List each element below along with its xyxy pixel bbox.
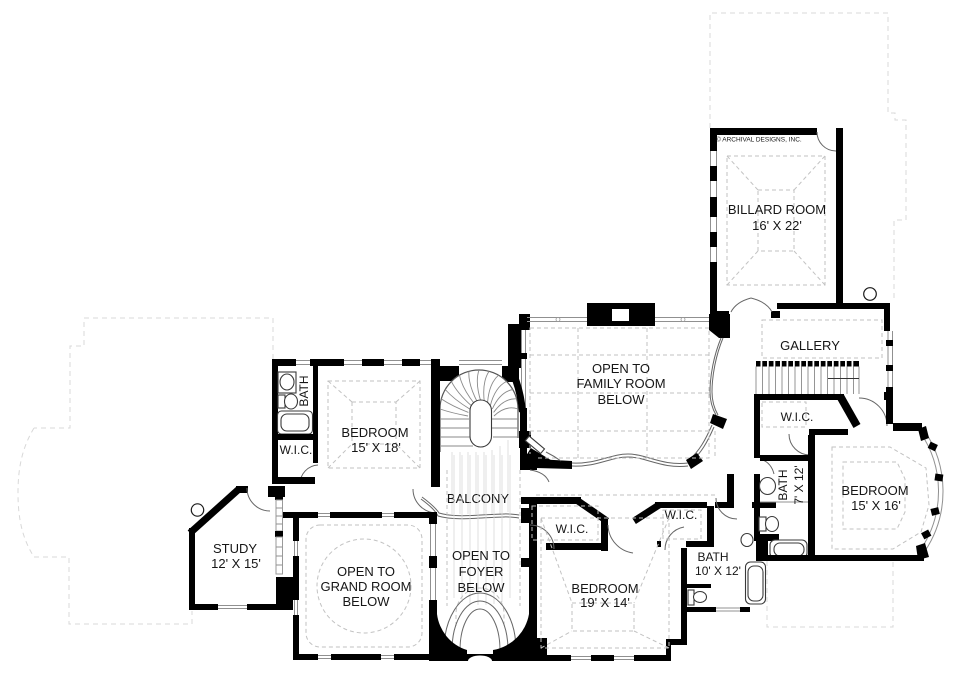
svg-text:15' X 18': 15' X 18' bbox=[351, 440, 401, 455]
svg-text:BELOW: BELOW bbox=[598, 392, 646, 407]
svg-text:OPEN TO: OPEN TO bbox=[592, 361, 650, 376]
svg-text:BATH: BATH bbox=[776, 469, 790, 500]
svg-text:GALLERY: GALLERY bbox=[780, 338, 840, 353]
svg-text:STUDY: STUDY bbox=[213, 541, 257, 556]
svg-text:W.I.C.: W.I.C. bbox=[781, 410, 814, 424]
svg-text:15' X 16': 15' X 16' bbox=[851, 498, 901, 513]
svg-text:FAMILY ROOM: FAMILY ROOM bbox=[576, 376, 665, 391]
svg-text:GRAND ROOM: GRAND ROOM bbox=[321, 579, 412, 594]
svg-text:12' X 15': 12' X 15' bbox=[211, 556, 261, 571]
svg-text:FOYER: FOYER bbox=[459, 564, 504, 579]
svg-text:BELOW: BELOW bbox=[343, 594, 391, 609]
svg-text:W.I.C.: W.I.C. bbox=[556, 522, 589, 536]
svg-text:© ARCHIVAL DESIGNS, INC.: © ARCHIVAL DESIGNS, INC. bbox=[716, 136, 802, 144]
svg-text:W.I.C.: W.I.C. bbox=[665, 508, 698, 522]
svg-text:10' X 12': 10' X 12' bbox=[695, 564, 741, 578]
svg-text:16' X 22': 16' X 22' bbox=[752, 218, 802, 233]
svg-text:7' X 12': 7' X 12' bbox=[792, 465, 806, 504]
svg-text:BATH: BATH bbox=[697, 550, 728, 564]
svg-text:19' X 14': 19' X 14' bbox=[580, 595, 630, 610]
svg-text:BEDROOM: BEDROOM bbox=[841, 483, 908, 498]
svg-text:BEDROOM: BEDROOM bbox=[341, 425, 408, 440]
svg-text:OPEN TO: OPEN TO bbox=[337, 564, 395, 579]
svg-text:W.I.C.: W.I.C. bbox=[280, 443, 313, 457]
svg-text:BATH: BATH bbox=[297, 375, 311, 406]
svg-text:BELOW: BELOW bbox=[458, 580, 506, 595]
svg-text:BILLARD ROOM: BILLARD ROOM bbox=[728, 202, 826, 217]
svg-text:BEDROOM: BEDROOM bbox=[571, 581, 638, 596]
svg-text:OPEN TO: OPEN TO bbox=[452, 548, 510, 563]
